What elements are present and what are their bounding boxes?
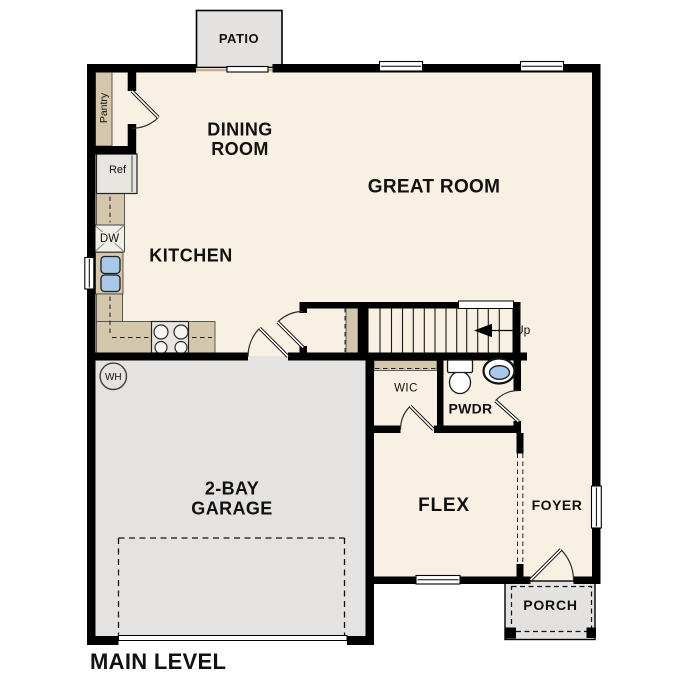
burner-2 xyxy=(174,325,188,339)
sink-bowl-top xyxy=(101,257,120,274)
pedestal-sink-basin xyxy=(490,366,510,380)
ref-label: Ref xyxy=(109,164,127,176)
porch-post-left xyxy=(506,628,517,639)
toilet-bowl xyxy=(450,372,471,394)
dropzone-cabinet xyxy=(346,307,358,353)
toilet-tank xyxy=(448,360,473,373)
porch-label: PORCH xyxy=(523,597,578,613)
kitchen-garage-wall xyxy=(87,353,248,361)
pwdr-label: PWDR xyxy=(449,401,493,417)
garage-wall-bottom-left xyxy=(87,636,119,645)
stair-left-wall xyxy=(358,306,369,353)
wic-label: WIC xyxy=(394,383,418,395)
pantry-wall-bottom xyxy=(87,146,136,155)
patio-sliding-door xyxy=(227,67,268,73)
burner-4 xyxy=(175,342,187,354)
foyer-label: FOYER xyxy=(532,497,583,513)
dining-label-line1: DINING xyxy=(207,120,272,140)
floor-plan: PATIO DINING ROOM GREAT ROOM KITCHEN 2-B… xyxy=(0,0,687,687)
garage-label-line1: 2-BAY xyxy=(205,479,259,499)
wh-label: WH xyxy=(105,372,122,383)
flex-top-wall-right xyxy=(434,426,521,434)
burner-1 xyxy=(154,325,168,339)
burner-3 xyxy=(155,342,167,354)
flex-label: FLEX xyxy=(418,495,470,516)
dining-label-line2: ROOM xyxy=(211,139,269,159)
pantry-stub-mid xyxy=(128,124,137,146)
pantry-stub-top xyxy=(128,64,137,91)
stair-top-wall xyxy=(300,302,460,309)
plan-title: MAIN LEVEL xyxy=(90,649,226,674)
porch-post-right xyxy=(587,628,597,639)
garage-door-panel xyxy=(119,636,348,641)
dw-label: DW xyxy=(100,233,119,245)
hall-door-stub-bottom xyxy=(300,346,308,361)
wic-pwdr-divider xyxy=(437,357,444,433)
patio-label: PATIO xyxy=(219,31,259,46)
up-label: Up xyxy=(515,323,531,337)
foyer-flex-wall-lower xyxy=(517,564,524,584)
stair-rail-bar xyxy=(459,301,514,309)
exterior-wall-top-left xyxy=(87,64,196,73)
garage-wall-right xyxy=(366,353,375,646)
garage-label-line2: GARAGE xyxy=(191,499,272,519)
great-room-label: GREAT ROOM xyxy=(368,177,500,198)
sink-bowl-bottom xyxy=(101,275,120,292)
pantry-label: Pantry xyxy=(98,92,110,123)
foyer-flex-wall-upper xyxy=(517,433,524,454)
kitchen-label: KITCHEN xyxy=(149,246,233,266)
flex-top-wall-left xyxy=(366,426,401,434)
exterior-wall-bottom-foyer xyxy=(574,577,601,585)
